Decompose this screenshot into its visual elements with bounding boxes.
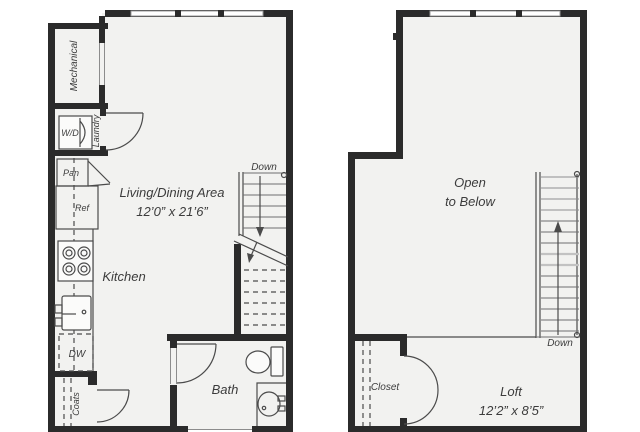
wall-segment <box>170 341 177 348</box>
wall-segment <box>234 244 241 341</box>
floor-plan: Mechanical W/D Laundry Pan Ref Kitchen L… <box>0 0 640 432</box>
living-area-label: Living/Dining Area <box>119 185 224 200</box>
wall-segment <box>48 150 108 156</box>
level1-plan: Mechanical W/D Laundry Pan Ref Kitchen L… <box>48 10 293 432</box>
wall-segment <box>396 10 403 159</box>
sink-basin <box>62 296 91 330</box>
living-area-dims: 12’0” x 21’6” <box>136 204 208 219</box>
wall-segment <box>400 418 407 432</box>
wall-segment <box>88 371 97 385</box>
window-mullion <box>218 10 224 17</box>
mechanical-label: Mechanical <box>69 40 80 91</box>
wall-segment <box>393 33 399 40</box>
wall-segment <box>167 334 293 341</box>
wall-segment <box>286 10 293 432</box>
floor-plan-svg: Mechanical W/D Laundry Pan Ref Kitchen L… <box>0 0 640 432</box>
loft-label: Loft <box>500 384 523 399</box>
wall-segment <box>348 334 407 341</box>
wall-segment <box>400 341 407 356</box>
pantry-label: Pan <box>63 168 79 178</box>
bath-label: Bath <box>212 382 239 397</box>
level2-plan: Open to Below Loft 12’2” x 8’5” Closet D… <box>348 10 587 432</box>
stove <box>58 241 93 281</box>
toilet-tank <box>271 347 283 376</box>
window <box>131 11 263 16</box>
coats-label: Coats <box>71 392 81 416</box>
wall-segment <box>48 23 55 432</box>
laundry-label: Laundry <box>91 114 101 147</box>
wall-segment <box>170 385 177 432</box>
stairs-down-label-level2: Down <box>547 338 573 349</box>
stairs-down-label-level1: Down <box>251 162 277 173</box>
wall-segment <box>252 426 293 432</box>
wall-segment <box>348 426 587 432</box>
wall-segment <box>348 152 403 159</box>
open-to-below-label-line2: to Below <box>445 194 496 209</box>
wall-segment <box>99 16 105 43</box>
stove-outline <box>58 241 93 281</box>
wall-segment <box>348 152 355 432</box>
wall-segment <box>580 10 587 432</box>
window-mullion <box>516 10 522 17</box>
window-mullion <box>470 10 476 17</box>
closet-label: Closet <box>371 382 401 393</box>
dishwasher-label: DW <box>69 349 87 360</box>
window-band <box>430 10 560 17</box>
window-band <box>131 10 263 17</box>
window-mullion <box>175 10 181 17</box>
wall-segment <box>48 371 90 377</box>
window <box>430 11 560 16</box>
wall-segment <box>48 426 188 432</box>
toilet-bowl <box>246 351 270 373</box>
wd-label: W/D <box>61 128 79 138</box>
open-to-below-label-line1: Open <box>454 175 486 190</box>
fridge-label: Ref <box>75 203 91 213</box>
wall-segment <box>99 85 105 109</box>
loft-dims: 12’2” x 8’5” <box>479 403 544 418</box>
kitchen-label: Kitchen <box>102 269 145 284</box>
